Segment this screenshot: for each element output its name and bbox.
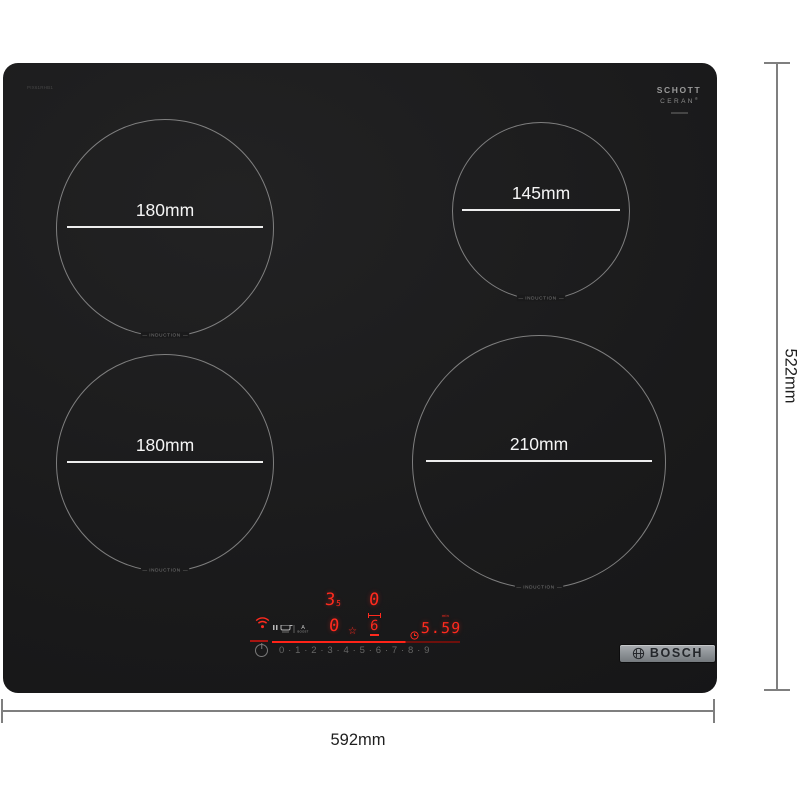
indicator-line-main xyxy=(272,641,460,643)
zone-diameter-label: 180mm xyxy=(57,200,273,221)
schott-text: SCHOTT xyxy=(655,85,703,95)
power-button[interactable] xyxy=(255,644,268,657)
width-dimension-tick-right xyxy=(713,699,715,723)
width-dimension-tick-left xyxy=(1,699,3,723)
boost-label: BOOST xyxy=(298,631,309,634)
zone-diameter-label: 210mm xyxy=(413,434,665,455)
touch-control-panel: A BOOST 35 0 0 6 ☆ 5.59 min xyxy=(245,590,477,662)
indicator-line-left xyxy=(250,640,268,642)
dash-left xyxy=(142,570,147,571)
zone-power-display-rear-left: 35 xyxy=(324,592,340,609)
bosch-anchor-icon xyxy=(632,647,645,660)
bosch-badge: BOSCH xyxy=(620,645,715,662)
product-dimension-diagram: PIX61RHB1 SCHOTT CERAN® 180mm INDUCTION … xyxy=(0,0,800,800)
favourite-star-icon: ☆ xyxy=(348,627,357,637)
dash-right xyxy=(183,570,188,571)
zone-diameter-label: 180mm xyxy=(57,435,273,456)
power-level-slider[interactable]: 0 · 1 · 2 · 3 · 4 · 5 · 6 · 7 · 8 · 9 xyxy=(279,645,463,656)
height-dimension-tick-top xyxy=(764,62,790,64)
ceran-text: CERAN® xyxy=(655,96,703,105)
height-dimension-line xyxy=(776,63,778,690)
function-icons: A BOOST xyxy=(273,625,309,634)
zone-diameter-line xyxy=(67,226,263,228)
zone-diameter-line xyxy=(426,460,652,462)
induction-label: INDUCTION xyxy=(515,584,563,590)
zone-diameter-line xyxy=(67,461,263,463)
dash-right xyxy=(183,335,188,336)
schott-subtext-line xyxy=(671,112,688,114)
induction-hob-surface: PIX61RHB1 SCHOTT CERAN® 180mm INDUCTION … xyxy=(3,63,717,693)
timer-display: 5.59 xyxy=(420,621,461,636)
wifi-icon xyxy=(255,616,270,634)
induction-label: INDUCTION xyxy=(141,332,189,338)
height-dimension-tick-bottom xyxy=(764,689,790,691)
zone-power-display-rear-right: 0 xyxy=(368,592,379,609)
dash-right xyxy=(557,587,562,588)
frying-sensor-icon xyxy=(281,625,291,633)
cooking-zone-front-right: 210mm INDUCTION xyxy=(412,335,666,589)
zone-select-underline xyxy=(370,634,379,636)
cooking-zone-rear-right: 145mm INDUCTION xyxy=(452,122,630,300)
schott-ceran-logo: SCHOTT CERAN® xyxy=(655,85,703,114)
width-dimension-label: 592mm xyxy=(0,731,716,750)
divider xyxy=(294,625,295,633)
zone-diameter-line xyxy=(462,209,620,211)
height-dimension-label: 522mm xyxy=(781,348,800,403)
induction-label: INDUCTION xyxy=(141,567,189,573)
bosch-wordmark: BOSCH xyxy=(650,647,703,660)
zone-power-display-front-right: 6 xyxy=(368,613,381,636)
dash-right xyxy=(559,298,564,299)
dash-left xyxy=(142,335,147,336)
dash-left xyxy=(518,298,523,299)
cooking-zone-front-left: 180mm INDUCTION xyxy=(56,354,274,572)
boost-function: A BOOST xyxy=(298,625,309,634)
model-code: PIX61RHB1 xyxy=(27,85,53,90)
width-dimension-line xyxy=(2,710,714,712)
induction-label: INDUCTION xyxy=(517,295,565,301)
zone-power-display-front-left: 0 xyxy=(328,618,339,635)
cooking-zone-rear-left: 180mm INDUCTION xyxy=(56,119,274,337)
zone-diameter-label: 145mm xyxy=(453,183,629,204)
pause-icon xyxy=(273,625,278,630)
dash-left xyxy=(516,587,521,588)
timer-unit-label: min xyxy=(442,614,449,618)
registered-mark-icon: ® xyxy=(695,96,698,101)
